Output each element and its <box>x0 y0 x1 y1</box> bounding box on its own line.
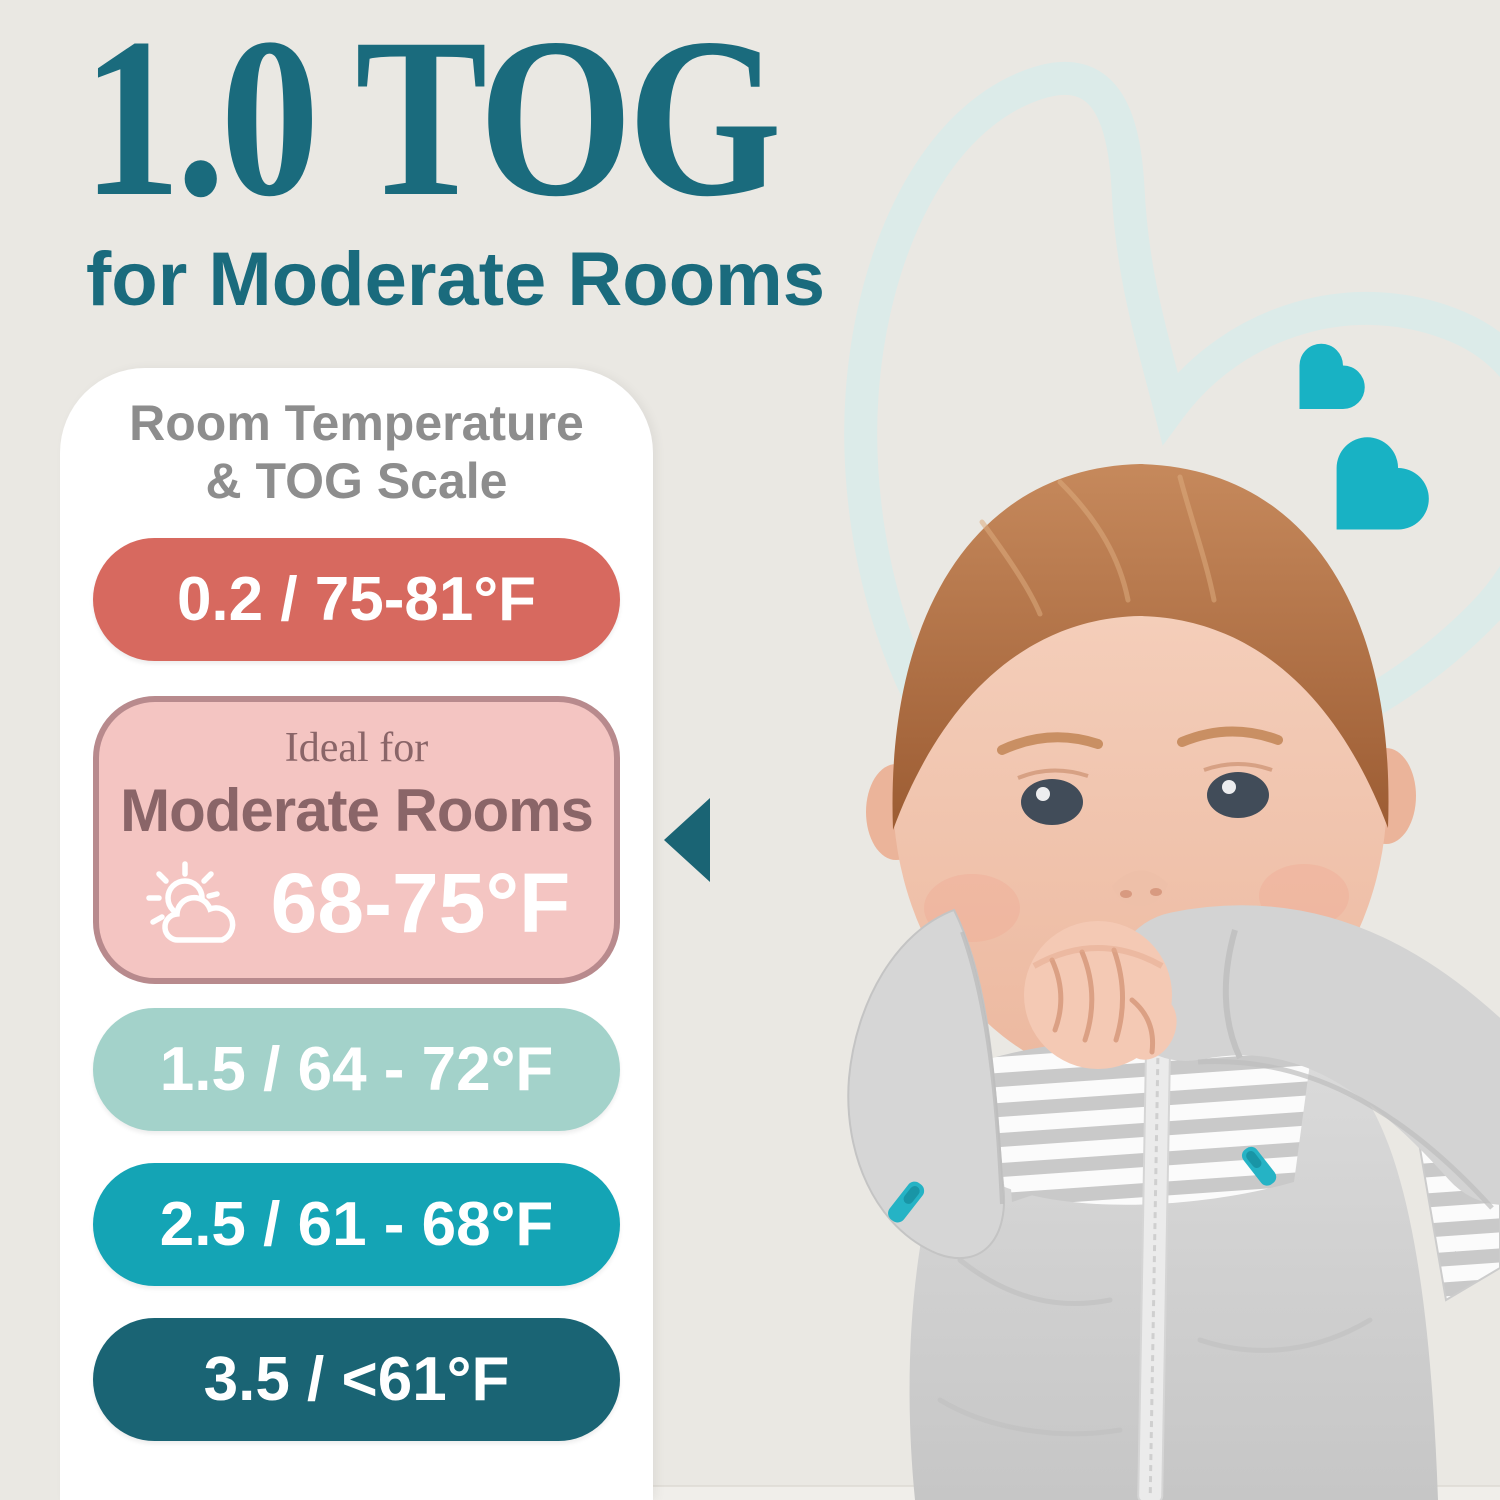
tog-row-3-5: 3.5 / <61°F <box>93 1318 620 1441</box>
teal-hearts-icon <box>1300 344 1429 530</box>
ideal-temp-range: 68-75°F <box>271 855 571 952</box>
tog-scale-card: Room Temperature & TOG Scale 0.2 / 75-81… <box>60 368 653 1500</box>
baby-photo <box>848 464 1500 1500</box>
ideal-room-card: Ideal for Moderate Rooms 68-75°F <box>93 696 620 984</box>
scale-heading-line2: & TOG Scale <box>60 452 653 510</box>
tog-row-0-2: 0.2 / 75-81°F <box>93 538 620 661</box>
ideal-room-type: Moderate Rooms <box>99 776 614 845</box>
tog-row-2-5: 2.5 / 61 - 68°F <box>93 1163 620 1286</box>
ideal-temp-row: 68-75°F <box>99 855 614 952</box>
left-triangle-pointer-icon <box>664 798 710 882</box>
page-subtitle: for Moderate Rooms <box>86 236 986 323</box>
scale-heading: Room Temperature & TOG Scale <box>60 394 653 510</box>
ideal-eyebrow: Ideal for <box>99 724 614 772</box>
tog-row-1-5: 1.5 / 64 - 72°F <box>93 1008 620 1131</box>
sun-behind-cloud-icon <box>143 860 255 948</box>
page-title: 1.0 TOG <box>82 18 865 228</box>
scale-heading-line1: Room Temperature <box>60 394 653 452</box>
